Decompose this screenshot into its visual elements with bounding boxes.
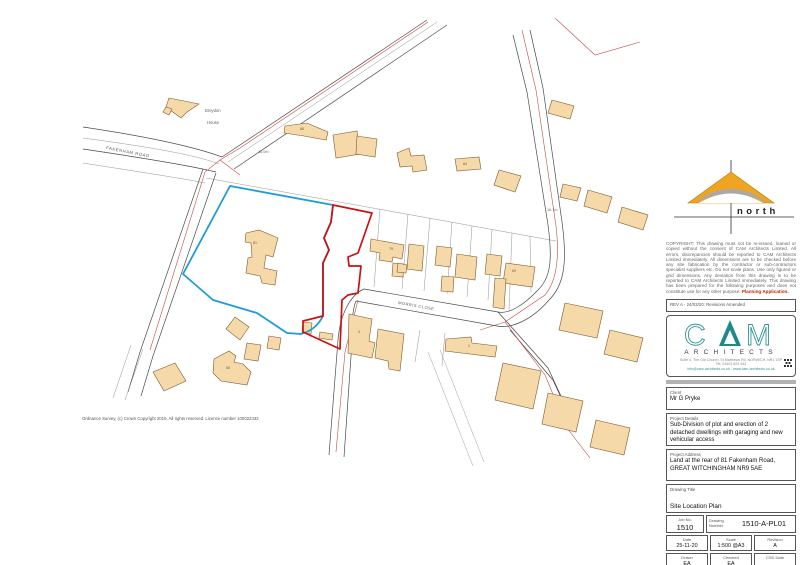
building-3 xyxy=(348,314,375,358)
drawing-title-value: Site Location Plan xyxy=(670,503,792,511)
purpose-highlight: Planning Application. xyxy=(742,289,789,294)
drawing-sheet: FAKENHAM ROAD MORRIS CLOSE Breydon House… xyxy=(0,0,800,565)
client-field: Client Mr G Pryke xyxy=(666,387,796,410)
drawn-value: EA xyxy=(669,561,705,565)
client-label: Client xyxy=(670,390,792,395)
site-plan-map: FAKENHAM ROAD MORRIS CLOSE Breydon House… xyxy=(0,0,666,565)
cam-architects-logo: C M ARCHITECTS Suite 4, The Old Church, … xyxy=(666,315,796,377)
building-84 xyxy=(455,157,481,171)
project-details-field: Project Details Sub-Division of plot and… xyxy=(666,413,796,446)
spot-height-b: 16.7m xyxy=(547,208,558,212)
building-1 xyxy=(445,337,497,357)
shed-2 xyxy=(319,332,333,340)
parish-boundary-lines xyxy=(150,18,640,458)
logo-letter-m: M xyxy=(746,319,771,348)
drawing-title-label: Drawing Title xyxy=(670,487,792,492)
north-label: north xyxy=(737,206,779,217)
plot-label-3: 3 xyxy=(358,330,360,334)
checked-value: EA xyxy=(713,561,749,565)
project-details-label: Project Details xyxy=(670,416,792,421)
separator-bar xyxy=(666,380,796,384)
building-69 xyxy=(503,263,535,287)
drawing-number-cell: Drawing Number 1510-A-PL01 xyxy=(706,515,796,533)
drawing-number-value: 1510-A-PL01 xyxy=(735,519,793,528)
job-no-cell: Job No. 1510 xyxy=(666,515,704,533)
logo-letter-c: C xyxy=(684,319,706,348)
scale-value: 1:500 @A3 xyxy=(713,543,749,549)
house-name-line1: Breydon xyxy=(205,108,221,113)
plot-label-60: 60 xyxy=(226,366,230,370)
plot-label-84: 84 xyxy=(463,162,467,166)
plot-label-86: 86 xyxy=(300,127,304,131)
project-address-field: Project Address Land at the rear of 81 F… xyxy=(666,449,796,481)
date-scale-revision-row: Date 25-11-20 Scale 1:500 @A3 Revision A xyxy=(666,535,796,551)
job-no-value: 1510 xyxy=(669,523,701,532)
practice-crest-icon xyxy=(784,359,793,368)
spot-height-a: 16.0m xyxy=(258,150,269,154)
practice-address: Suite 4, The Old Church, St Matthews Rd,… xyxy=(670,358,792,371)
revision-cell: Revision A xyxy=(754,535,796,551)
revision-value: A xyxy=(757,543,793,549)
north-arrow: north xyxy=(666,158,796,236)
checked-cell: Checked EA xyxy=(710,553,752,565)
csd-date-cell: CSD Date xyxy=(754,553,796,565)
plot-label-79: 79 xyxy=(389,247,393,251)
house-name-line2: House xyxy=(207,120,220,125)
building-86 xyxy=(284,123,328,140)
client-value: Mr G Pryke xyxy=(670,396,792,404)
revision-note: REV A - 24/03/20: Revisions Amended xyxy=(666,299,796,312)
copyright-note: COPYRIGHT: This drawing must not be re-i… xyxy=(666,241,796,294)
building-79 xyxy=(370,239,404,262)
plot-label-1: 1 xyxy=(468,344,470,348)
building-breydon-house xyxy=(166,98,199,118)
drawn-cell: Drawn EA xyxy=(666,553,708,565)
plot-label-81: 81 xyxy=(253,241,257,245)
building-81 xyxy=(245,230,278,285)
date-cell: Date 25-11-20 xyxy=(666,535,708,551)
project-address-value: Land at the rear of 81 Fakenham Road, GR… xyxy=(670,458,792,473)
logo-architects-text: ARCHITECTS xyxy=(670,349,792,356)
job-row: Job No. 1510 Drawing Number 1510-A-PL01 xyxy=(666,515,796,533)
map-labels: FAKENHAM ROAD MORRIS CLOSE Breydon House… xyxy=(106,108,558,370)
scale-cell: Scale 1:500 @A3 xyxy=(710,535,752,551)
drawing-title-field: Drawing Title Site Location Plan xyxy=(666,484,796,513)
project-address-label: Project Address xyxy=(670,452,792,457)
buildings xyxy=(153,98,648,455)
os-attribution: Ordnance Survey, (c) Crown Copyright 201… xyxy=(82,416,259,421)
drawn-checked-row: Drawn EA Checked EA CSD Date xyxy=(666,553,796,565)
project-details-value: Sub-Division of plot and erection of 2 d… xyxy=(670,422,792,445)
title-block-panel: north COPYRIGHT: This drawing must not b… xyxy=(666,158,796,565)
date-value: 25-11-20 xyxy=(669,543,705,549)
plot-label-69: 69 xyxy=(512,269,516,273)
